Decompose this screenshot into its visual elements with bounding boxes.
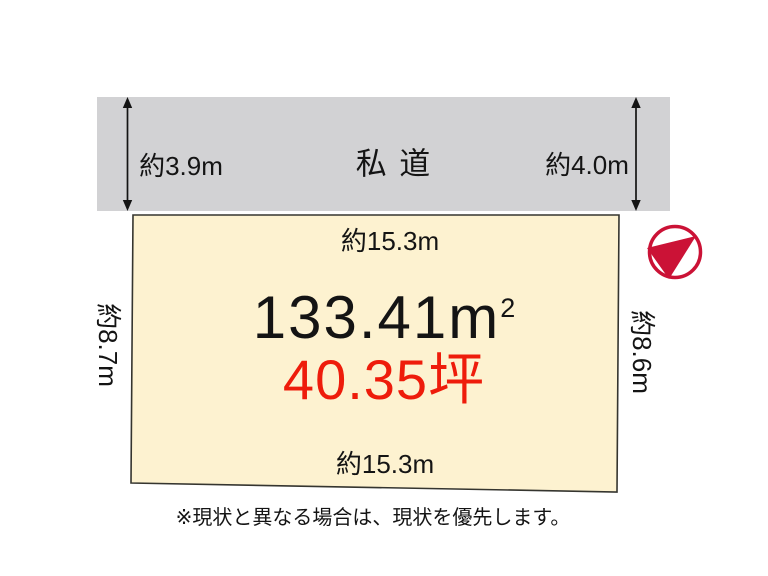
road-width-left-label: 約3.9m	[139, 153, 223, 179]
area-sqm-exponent: 2	[500, 293, 515, 323]
frontage-top-label: 約15.3m	[341, 228, 439, 254]
frontage-bottom-label: 約15.3m	[336, 451, 434, 477]
area-tsubo-label: 40.35坪	[283, 352, 485, 408]
area-sqm-value: 133.41m	[253, 284, 501, 351]
land-plot-diagram: 約3.9m 私 道 約4.0m 約15.3m 133.41m2 40.35坪 約…	[0, 0, 768, 576]
compass-icon	[647, 227, 701, 280]
depth-right-label: 約8.6m	[629, 310, 655, 394]
private-road-label: 私 道	[356, 149, 433, 180]
depth-left-label: 約8.7m	[95, 303, 121, 387]
area-sqm-label: 133.41m2	[253, 288, 516, 348]
road-width-right-label: 約4.0m	[545, 152, 629, 178]
disclaimer-note: ※現状と異なる場合は、現状を優先します。	[176, 508, 571, 528]
